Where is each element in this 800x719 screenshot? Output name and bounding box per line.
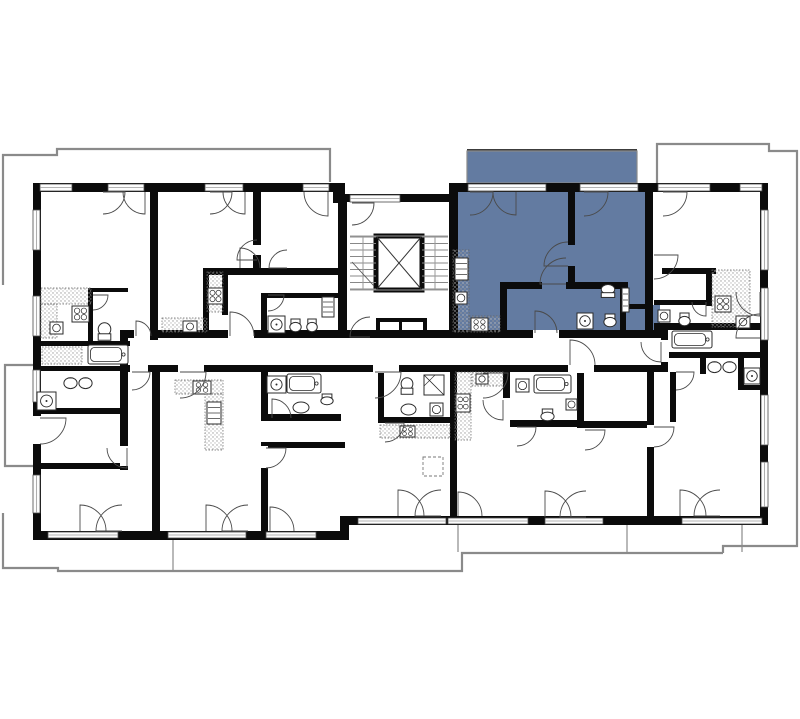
- kitchen-counter: [42, 347, 82, 364]
- washer-dot: [276, 384, 278, 386]
- twin-sink: [708, 362, 721, 373]
- sink: [401, 404, 416, 415]
- door-arc: [223, 192, 245, 214]
- door-arc: [40, 418, 66, 444]
- door-arc: [694, 490, 720, 516]
- kitchen-counter: [41, 288, 91, 304]
- door-arc: [680, 490, 706, 516]
- wall: [261, 293, 267, 333]
- toilet-bowl: [321, 397, 333, 405]
- door-opening: [654, 250, 662, 278]
- door-arc: [222, 505, 248, 531]
- stove: [715, 296, 731, 312]
- wall: [738, 352, 744, 390]
- wall: [150, 183, 158, 340]
- wall: [33, 183, 333, 192]
- door-arc: [570, 340, 595, 365]
- wall: [645, 183, 653, 338]
- washer-dot: [276, 324, 278, 326]
- wall: [33, 463, 128, 469]
- door-arc: [266, 448, 286, 468]
- toilet-tank: [98, 334, 111, 340]
- wall: [500, 282, 507, 332]
- door-arc: [654, 427, 674, 447]
- washer-dot: [46, 400, 48, 402]
- stair-core-layer: [350, 236, 448, 290]
- door-arc: [210, 192, 232, 214]
- door-opening: [661, 340, 669, 362]
- door-arc: [352, 203, 374, 225]
- floor-plan: [0, 0, 800, 719]
- door-arc: [517, 427, 536, 446]
- wall: [399, 319, 402, 337]
- door-arc: [641, 342, 661, 362]
- toilet-bowl: [307, 322, 318, 331]
- wall: [261, 414, 341, 421]
- wall: [33, 366, 127, 371]
- washer-dot: [584, 320, 586, 322]
- door-arc: [545, 491, 571, 517]
- floor-plan-svg: [0, 0, 800, 719]
- wall: [568, 183, 575, 245]
- toilet-bowl: [290, 322, 301, 331]
- wall: [423, 319, 427, 337]
- wall: [577, 372, 584, 427]
- dashed-furniture: [423, 457, 443, 476]
- washer-dot: [751, 375, 753, 377]
- wall: [253, 183, 261, 245]
- wall: [378, 372, 384, 420]
- door-arc: [676, 372, 694, 390]
- wall: [738, 385, 768, 390]
- door-arc: [269, 250, 287, 268]
- stove: [471, 318, 488, 331]
- toilet-bowl: [541, 412, 554, 421]
- wall: [261, 442, 345, 448]
- balcony-left-mid: [5, 365, 33, 466]
- door-opening: [33, 416, 41, 444]
- wall: [577, 421, 652, 428]
- highlighted-balcony: [467, 151, 637, 183]
- door-arc: [80, 505, 106, 531]
- door-opening: [261, 446, 268, 468]
- wall: [654, 300, 712, 305]
- wall: [378, 417, 455, 423]
- toilet-tank: [401, 388, 413, 394]
- wall: [566, 282, 628, 289]
- wall: [376, 318, 380, 337]
- door-arc: [415, 490, 441, 516]
- door-arc: [585, 430, 605, 450]
- door-arc: [483, 400, 503, 420]
- door-arc: [270, 507, 294, 531]
- door-arc: [206, 505, 232, 531]
- toilet-bowl: [679, 316, 690, 325]
- stove: [72, 306, 89, 322]
- door-opening: [503, 398, 510, 422]
- door-arc: [663, 192, 687, 216]
- door-arc: [304, 192, 328, 216]
- wall: [700, 352, 706, 374]
- wall: [670, 372, 676, 422]
- door-arc: [103, 192, 125, 214]
- wall: [661, 352, 768, 358]
- stove: [456, 394, 470, 412]
- wall: [338, 194, 347, 338]
- door-arc: [93, 295, 108, 310]
- sink: [293, 402, 309, 413]
- balcony-top-left: [3, 149, 330, 285]
- door-opening: [568, 365, 594, 373]
- wall: [152, 372, 160, 540]
- wall: [510, 420, 577, 427]
- stove: [208, 288, 223, 304]
- stove: [193, 381, 211, 394]
- door-opening: [647, 425, 655, 447]
- door-arc: [132, 372, 150, 390]
- toilet-bowl: [604, 317, 616, 326]
- wall: [568, 266, 575, 284]
- door-arc: [560, 491, 586, 517]
- door-arc: [96, 505, 122, 531]
- door-arc: [458, 492, 482, 516]
- twin-sink: [723, 362, 736, 373]
- twin-sink: [64, 378, 77, 389]
- door-opening: [533, 330, 559, 339]
- toilet-tank: [601, 293, 614, 298]
- twin-sink: [79, 378, 92, 389]
- wall: [88, 288, 128, 292]
- door-arc: [123, 192, 145, 214]
- door-opening: [228, 330, 254, 339]
- wall: [654, 323, 768, 330]
- door-arc: [398, 490, 424, 516]
